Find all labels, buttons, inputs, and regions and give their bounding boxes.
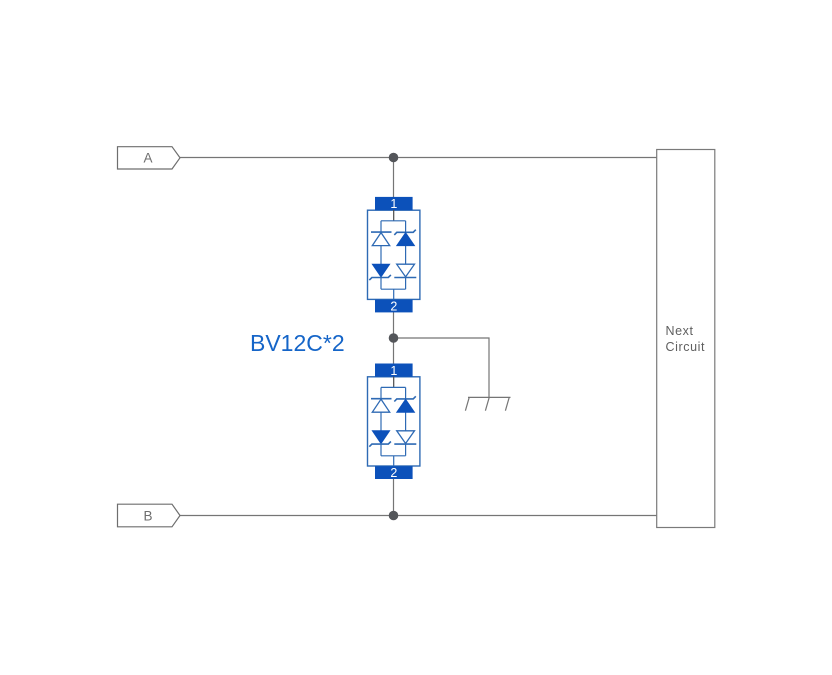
svg-text:2: 2	[390, 299, 397, 313]
svg-text:1: 1	[390, 364, 397, 378]
svg-text:Next: Next	[666, 324, 694, 338]
svg-text:2: 2	[390, 466, 397, 480]
svg-text:Circuit: Circuit	[666, 340, 706, 354]
svg-text:1: 1	[390, 197, 397, 211]
svg-text:B: B	[143, 508, 152, 523]
svg-text:BV12C*2: BV12C*2	[250, 330, 345, 356]
svg-text:A: A	[143, 150, 152, 165]
